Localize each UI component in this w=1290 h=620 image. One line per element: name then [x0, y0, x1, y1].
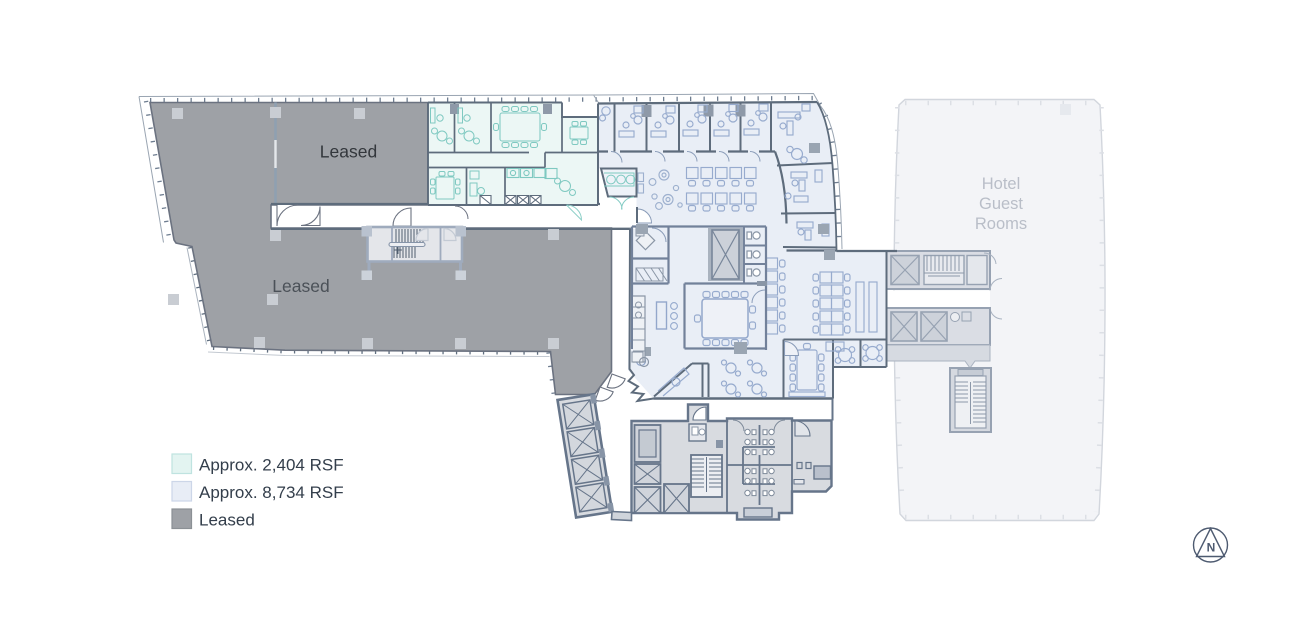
svg-text:Guest: Guest	[979, 195, 1023, 213]
svg-text:Leased: Leased	[320, 142, 377, 162]
svg-text:N: N	[1207, 541, 1216, 555]
svg-text:Rooms: Rooms	[975, 215, 1027, 233]
svg-text:Leased: Leased	[199, 511, 255, 530]
svg-text:Hotel: Hotel	[982, 175, 1021, 193]
svg-text:Approx. 2,404 RSF: Approx. 2,404 RSF	[199, 456, 344, 475]
svg-text:Approx. 8,734 RSF: Approx. 8,734 RSF	[199, 483, 344, 502]
svg-text:Leased: Leased	[272, 276, 329, 296]
